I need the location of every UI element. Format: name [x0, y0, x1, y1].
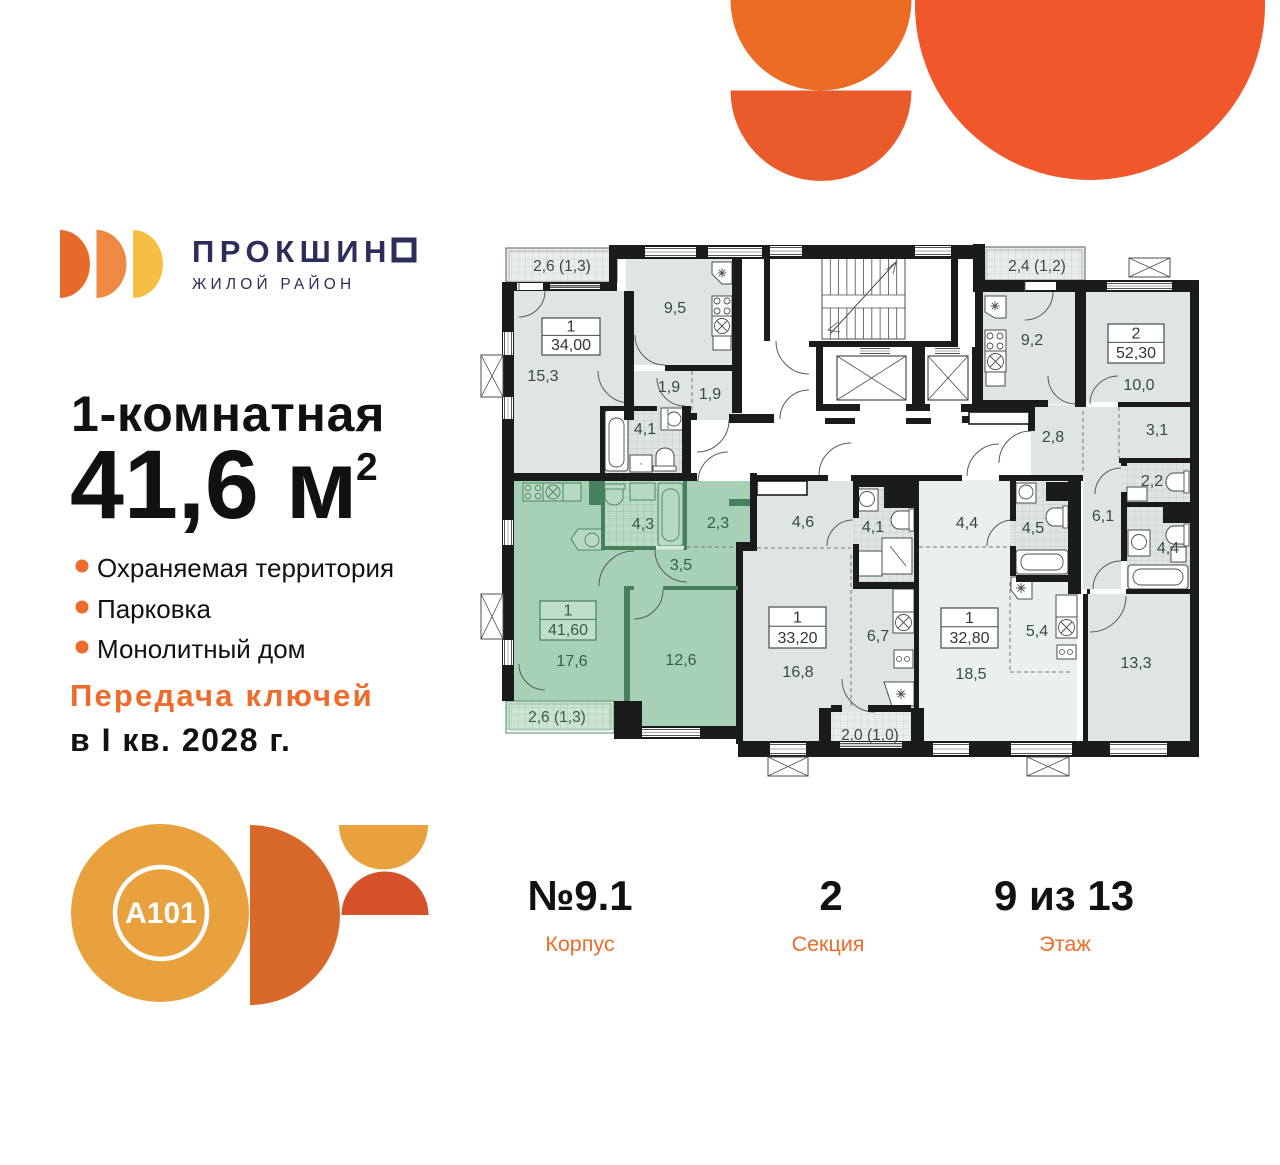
- svg-text:1: 1: [793, 609, 802, 626]
- svg-text:2,3: 2,3: [707, 515, 729, 532]
- svg-text:1,9: 1,9: [699, 386, 721, 403]
- svg-text:5,4: 5,4: [1026, 623, 1048, 640]
- svg-text:32,80: 32,80: [949, 630, 989, 647]
- svg-text:16,8: 16,8: [782, 664, 813, 681]
- svg-text:6,7: 6,7: [867, 628, 889, 645]
- svg-text:2: 2: [1132, 325, 1141, 342]
- svg-text:34,00: 34,00: [551, 337, 591, 354]
- svg-text:2: 2: [356, 446, 378, 489]
- svg-text:15,3: 15,3: [527, 368, 558, 385]
- svg-text:в I кв. 2028 г.: в I кв. 2028 г.: [70, 722, 291, 758]
- svg-text:4,1: 4,1: [862, 519, 884, 536]
- svg-text:17,6: 17,6: [556, 653, 587, 670]
- svg-text:Охраняемая территория: Охраняемая территория: [97, 553, 394, 583]
- svg-text:10,0: 10,0: [1123, 377, 1154, 394]
- svg-text:ЖИЛОЙ РАЙОН: ЖИЛОЙ РАЙОН: [192, 275, 355, 293]
- svg-text:2: 2: [819, 872, 842, 919]
- svg-text:2,6 (1,3): 2,6 (1,3): [533, 258, 591, 275]
- svg-text:3,1: 3,1: [1146, 422, 1168, 439]
- svg-text:Этаж: Этаж: [1039, 932, 1091, 956]
- svg-text:№9.1: №9.1: [527, 872, 632, 919]
- svg-text:Монолитный дом: Монолитный дом: [97, 634, 306, 664]
- svg-text:2,8: 2,8: [1042, 429, 1064, 446]
- svg-text:2,0 (1,0): 2,0 (1,0): [841, 727, 899, 744]
- svg-text:Передача ключей: Передача ключей: [70, 678, 374, 713]
- svg-text:4,4: 4,4: [956, 515, 978, 532]
- svg-text:1: 1: [567, 318, 576, 335]
- svg-text:4,5: 4,5: [1022, 520, 1044, 537]
- svg-text:1: 1: [564, 602, 573, 619]
- svg-text:41,6 м: 41,6 м: [70, 430, 358, 539]
- svg-text:9,2: 9,2: [1021, 332, 1043, 349]
- svg-text:9,5: 9,5: [664, 300, 686, 317]
- svg-text:33,20: 33,20: [777, 630, 817, 647]
- svg-text:6,1: 6,1: [1092, 508, 1114, 525]
- svg-text:4,6: 4,6: [792, 514, 814, 531]
- svg-text:2,2: 2,2: [1141, 473, 1163, 490]
- svg-text:Парковка: Парковка: [97, 594, 211, 624]
- svg-text:1: 1: [965, 610, 974, 627]
- svg-text:18,5: 18,5: [955, 666, 986, 683]
- svg-text:Секция: Секция: [792, 932, 865, 956]
- svg-text:2,4 (1,2): 2,4 (1,2): [1008, 258, 1066, 275]
- svg-text:·: ·: [639, 456, 643, 470]
- svg-text:41,60: 41,60: [548, 622, 588, 639]
- svg-text:2,6 (1,3): 2,6 (1,3): [528, 709, 586, 726]
- svg-text:ПРОКШИН: ПРОКШИН: [192, 234, 392, 269]
- svg-text:A101: A101: [125, 897, 197, 930]
- svg-text:Корпус: Корпус: [545, 932, 615, 956]
- svg-text:12,6: 12,6: [665, 652, 696, 669]
- svg-text:52,30: 52,30: [1116, 345, 1156, 362]
- svg-text:3,5: 3,5: [670, 557, 692, 574]
- svg-text:9 из 13: 9 из 13: [994, 872, 1134, 919]
- svg-text:4,3: 4,3: [632, 516, 654, 533]
- svg-text:4,4: 4,4: [1157, 540, 1179, 557]
- svg-text:4,1: 4,1: [634, 421, 656, 438]
- svg-text:13,3: 13,3: [1120, 655, 1151, 672]
- svg-text:1,9: 1,9: [658, 379, 680, 396]
